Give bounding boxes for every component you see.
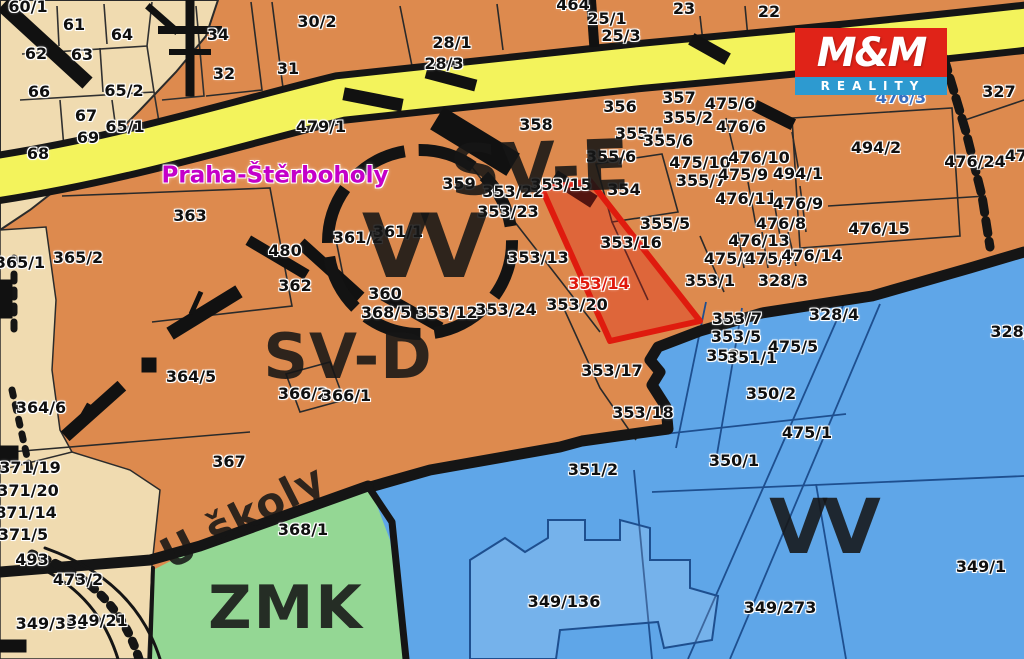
- zone-beige-corner: [0, 452, 160, 659]
- zoning-map-canvas[interactable]: [0, 0, 1024, 659]
- mm-reality-logo: M&M REALITY: [795, 28, 947, 95]
- map-viewport[interactable]: Praha-Štěrboholy 60/1616462636665/26765/…: [0, 0, 1024, 659]
- logo-mm-text: M&M: [795, 28, 947, 77]
- logo-reality-text: REALITY: [795, 77, 947, 95]
